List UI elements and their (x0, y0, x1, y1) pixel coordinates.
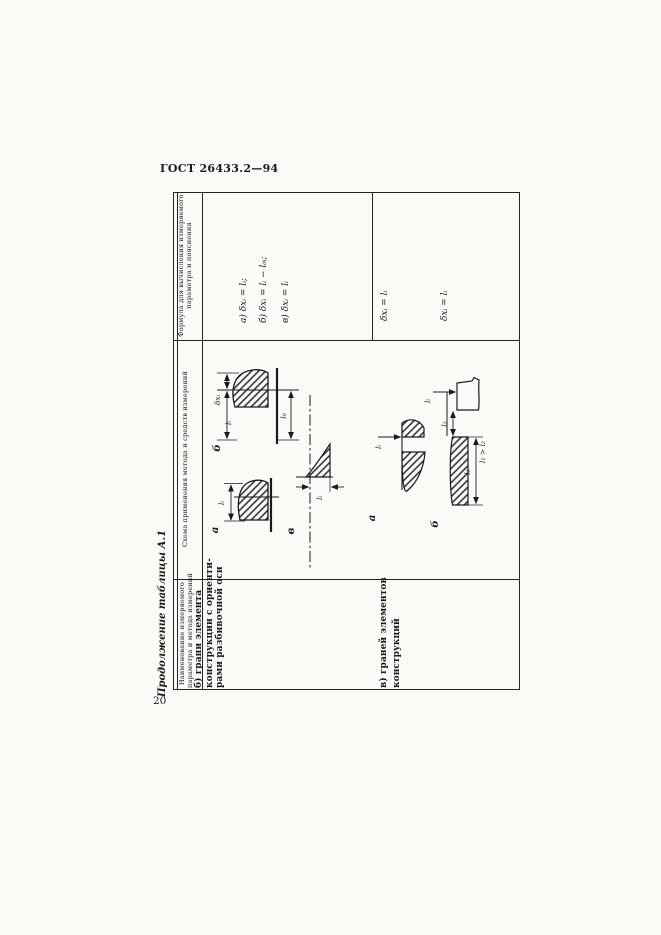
row2-b-dim-l1: l₁ (463, 469, 472, 474)
row1-a-dim-li: lᵢ (217, 501, 226, 505)
table-row-separator (372, 192, 373, 340)
row2-b-dim-li: lᵢ (423, 399, 432, 403)
row1-v-dim-li: lᵢ (315, 496, 324, 500)
row1-name-line3: рами разбивочной оси (215, 582, 226, 688)
row2-scheme-b: lᵢ l₂ l₁ l₁ > l₂ б (423, 378, 487, 528)
table-border-bottom (173, 689, 520, 690)
row1-scheme-a: lᵢ а (209, 478, 279, 533)
row2-name-line2: конструкций (392, 582, 403, 688)
measurement-scheme-diagrams: δxᵢ lᵢ l₀ б lᵢ а lᵢ в (173, 340, 521, 579)
row1-name-line1: б) грани элемента (194, 582, 205, 688)
row1-b-letter: б (211, 444, 223, 452)
row2-a-letter: а (366, 514, 378, 521)
scanned-document-page: ГОСТ 26433.2—94 20 Продолжение таблицы А… (0, 0, 661, 935)
row2-a-dim-li: lᵢ (374, 445, 383, 449)
col-header-formula-line2: параметра и пояснения (186, 192, 194, 339)
row2-formula-b: δxᵢ = lᵢ (440, 191, 452, 321)
table-continuation-title: Продолжение таблицы А.1 (157, 557, 172, 697)
row2-b-letter: б (429, 520, 441, 528)
row1-v-letter: в (285, 527, 297, 534)
row1-formula-v: в) δxᵢ = lᵢ (281, 193, 293, 323)
row1-formula-a: а) δxᵢ = lᵢ; (239, 193, 251, 323)
row1-scheme-b: δxᵢ lᵢ l₀ б (211, 368, 299, 452)
standard-code-header: ГОСТ 26433.2—94 (160, 162, 279, 175)
row1-formula-b: б) δxᵢ = lᵢ − l₀ᵢ; (259, 193, 271, 323)
row2-b-dim-l2: l₂ (440, 421, 449, 426)
row1-scheme-v: lᵢ в (285, 395, 344, 570)
row1-name-line2: конструкции с ориенти- (205, 582, 216, 688)
row1-b-dim-l0: l₀ (279, 413, 288, 418)
row1-a-letter: а (209, 526, 221, 533)
row2-formula-a: δxᵢ = lᵢ (380, 191, 392, 321)
table-border-top (173, 192, 520, 193)
row2-b-dim-relation: l₁ > l₂ (478, 441, 487, 463)
row1-b-dim-dx: δxᵢ (213, 394, 222, 405)
row1-b-dim-li: lᵢ (224, 421, 233, 425)
row2-scheme-a: lᵢ а (366, 420, 425, 522)
row2-name-line1: в) граней элементов (379, 582, 390, 688)
